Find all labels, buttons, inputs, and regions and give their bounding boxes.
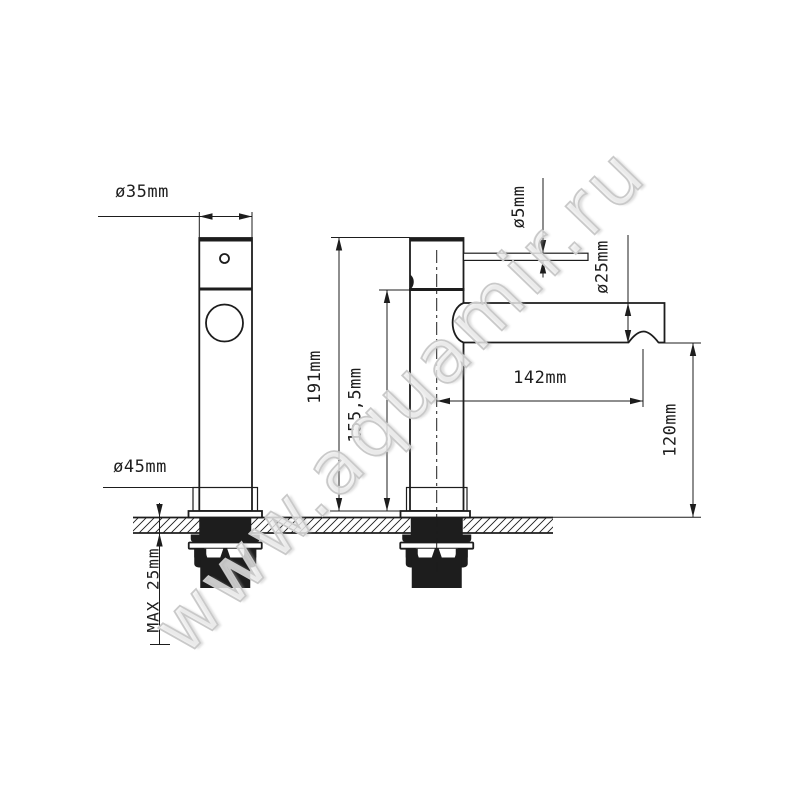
arrowhead [156, 534, 162, 547]
dimension-annotations: ø35mm ø45mm 191mm 155,5mm ø5mm [98, 178, 701, 645]
dim-spout-reach: 142mm [437, 349, 643, 407]
mounting-hardware-front [189, 518, 262, 589]
countertop-hatch-middle [251, 518, 411, 534]
countertop-hatch-left [133, 518, 200, 534]
arrowhead [239, 213, 252, 219]
countertop-section [133, 518, 553, 534]
dim-body-diameter: ø35mm [98, 182, 252, 238]
dim-spout-diameter-label: ø25mm [593, 240, 613, 294]
arrowhead [156, 504, 162, 517]
dim-total-height-label: 191mm [305, 350, 325, 404]
mounting-hardware-side [400, 518, 473, 589]
arrowhead [630, 398, 643, 404]
arrowhead [690, 504, 696, 517]
side-view [400, 238, 664, 588]
arrowhead [336, 238, 342, 251]
arrowhead [200, 213, 213, 219]
dim-max-thickness-label: MAX 25mm [144, 547, 163, 632]
faucet-dimension-drawing: ø35mm ø45mm 191mm 155,5mm ø5mm [0, 0, 800, 800]
dim-outlet-height: 120mm [553, 343, 701, 517]
arrowhead [540, 261, 546, 274]
technical-drawing-canvas: ø35mm ø45mm 191mm 155,5mm ø5mm [0, 0, 800, 800]
dim-spout-height: 155,5mm [330, 290, 410, 511]
dim-base-diameter: ø45mm [103, 457, 193, 488]
arrowhead [690, 343, 696, 356]
base-plate-front [189, 511, 263, 518]
arrowhead [384, 498, 390, 511]
aerator-hole [220, 254, 229, 263]
base-plate-side [401, 511, 471, 518]
faucet-body-front [199, 238, 252, 511]
front-view [189, 238, 263, 588]
dim-outlet-height-label: 120mm [661, 403, 681, 457]
dim-spout-reach-label: 142mm [513, 368, 567, 388]
handle-lever-pin [464, 253, 589, 260]
dim-handle-pin-label: ø5mm [509, 186, 529, 229]
arrowhead [384, 290, 390, 303]
dim-body-diameter-label: ø35mm [115, 182, 169, 202]
arrowhead [540, 240, 546, 253]
dim-spout-height-label: 155,5mm [346, 367, 366, 442]
arrowhead [336, 498, 342, 511]
dim-base-diameter-label: ø45mm [113, 457, 167, 477]
countertop-hatch-right [464, 518, 554, 534]
dim-handle-pin-diameter: ø5mm [509, 178, 546, 278]
spout-tube [453, 303, 665, 343]
